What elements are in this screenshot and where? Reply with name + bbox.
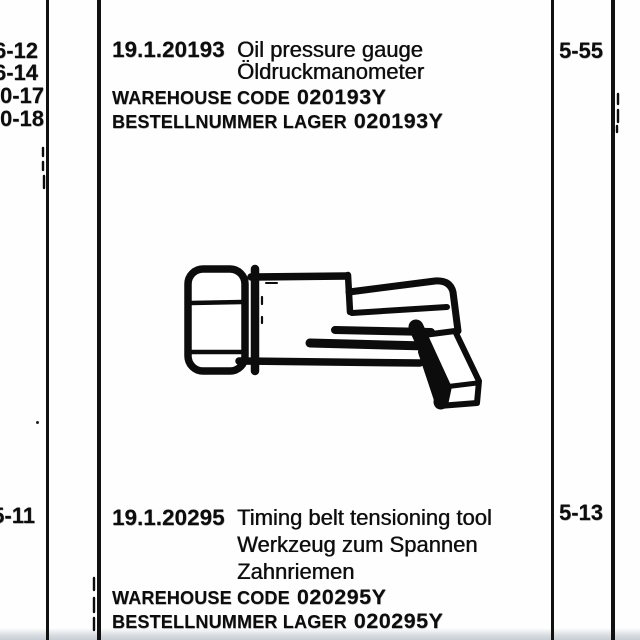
- column-rule-right-inner: [551, 0, 554, 640]
- part-number: 19.1.20295: [112, 507, 225, 530]
- warehouse-code-label: WAREHOUSE CODE: [112, 588, 290, 608]
- bestellnummer-value: 020295Y: [354, 609, 444, 633]
- column-rule-left-outer: [46, 0, 49, 640]
- end-block: [416, 327, 479, 406]
- bestellnummer-line: BESTELLNUMMER LAGER020193Y: [112, 111, 443, 133]
- hex-head: [188, 269, 245, 371]
- left-page-ref: 5-11: [0, 505, 35, 527]
- part-name-de: Öldruckmanometer: [237, 61, 424, 83]
- column-rule-left-inner: [97, 0, 101, 640]
- part-name-de: Zahnriemen: [237, 561, 354, 583]
- bottom-edge: [239, 361, 420, 363]
- warehouse-code-line: WAREHOUSE CODE020193Y: [112, 87, 386, 109]
- warehouse-code-value: 020295Y: [297, 585, 387, 609]
- warehouse-code-label: WAREHOUSE CODE: [112, 88, 290, 108]
- part-name-de: Werkzeug zum Spannen: [237, 534, 478, 556]
- right-page-ref: 5-55: [551, 40, 611, 62]
- right-page-ref: 5-13: [551, 502, 611, 524]
- warehouse-code-line: WAREHOUSE CODE020295Y: [112, 587, 386, 609]
- body: [251, 275, 458, 331]
- pin-rod: [310, 330, 431, 346]
- left-page-ref: 0-18: [0, 108, 44, 130]
- part-name-en: Oil pressure gauge: [237, 39, 423, 61]
- ink-speck: [36, 421, 39, 424]
- part-name-en: Timing belt tensioning tool: [237, 507, 492, 529]
- left-page-ref: 6-14: [0, 62, 38, 84]
- column-rule-right-outer: [611, 0, 615, 640]
- catalog-page: 6-12 6-14 0-17 0-18 5-11 19.1.20193 Oil …: [0, 0, 640, 640]
- bestellnummer-line: BESTELLNUMMER LAGER020295Y: [112, 611, 443, 633]
- bestellnummer-label: BESTELLNUMMER LAGER: [112, 112, 347, 132]
- warehouse-code-value: 020193Y: [297, 85, 387, 109]
- bestellnummer-value: 020193Y: [354, 109, 444, 133]
- collar: [255, 269, 262, 371]
- part-number: 19.1.20193: [112, 39, 225, 62]
- left-page-ref: 6-12: [0, 40, 38, 62]
- left-page-ref: 0-17: [0, 85, 44, 107]
- bestellnummer-label: BESTELLNUMMER LAGER: [112, 612, 347, 632]
